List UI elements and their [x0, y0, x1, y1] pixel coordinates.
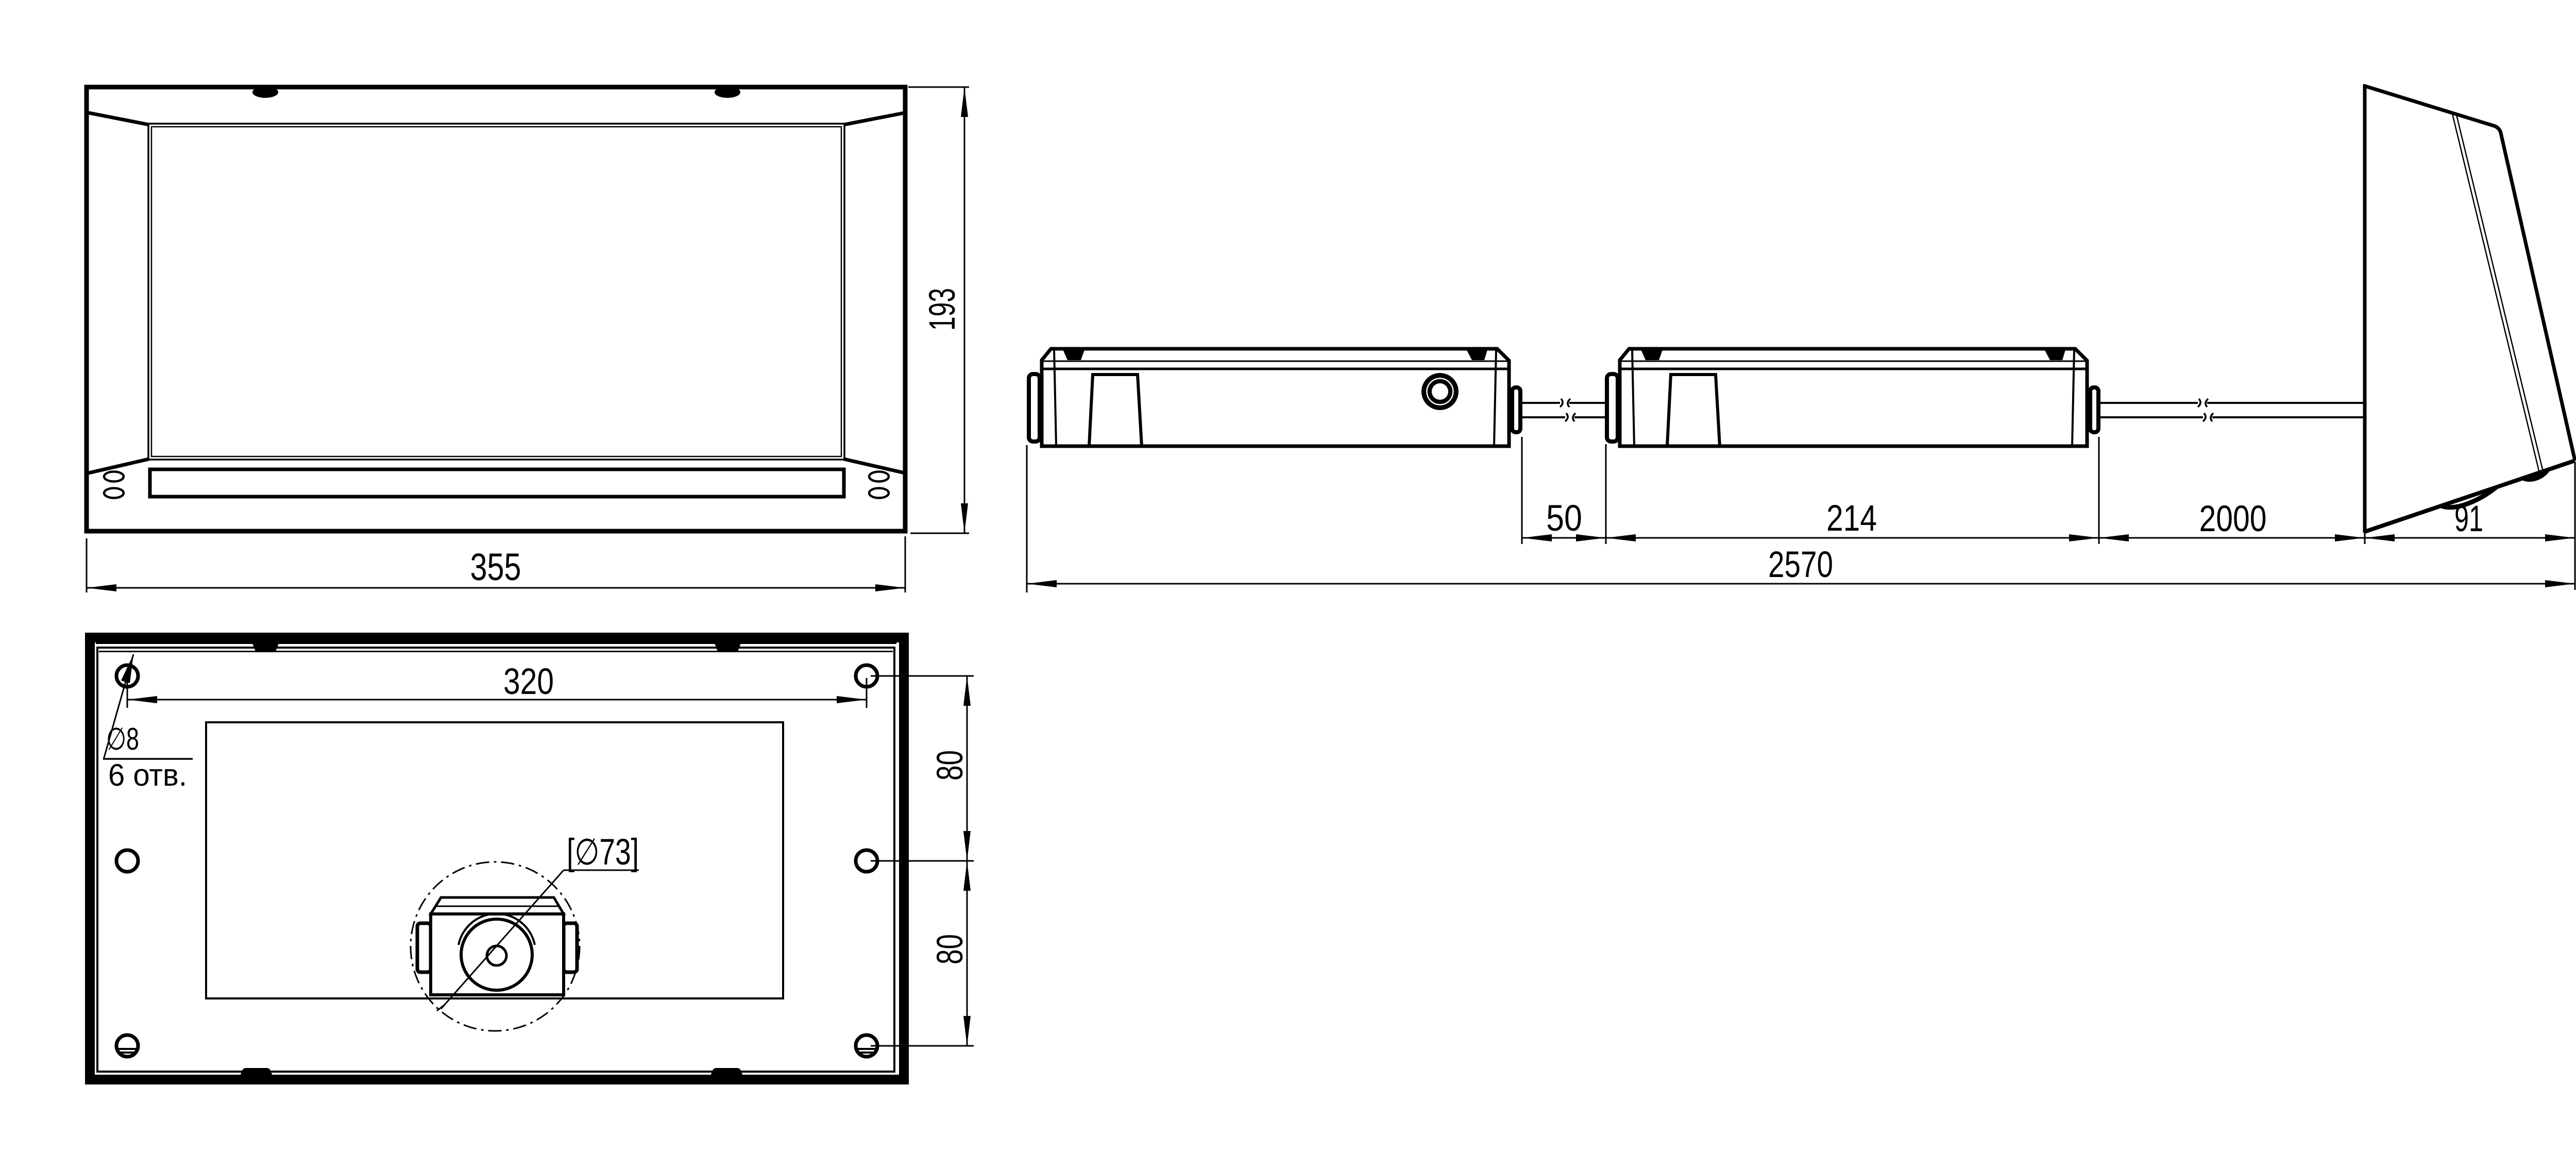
svg-text:214: 214	[1826, 498, 1877, 539]
svg-text:355: 355	[470, 546, 521, 588]
svg-text:2570: 2570	[1768, 545, 1833, 585]
svg-text:[∅73]: [∅73]	[567, 832, 639, 873]
svg-text:91: 91	[2454, 499, 2483, 539]
svg-text:80: 80	[930, 934, 971, 964]
svg-text:6 отв.: 6 отв.	[108, 758, 187, 792]
svg-text:2000: 2000	[2199, 499, 2267, 539]
svg-text:50: 50	[1546, 498, 1582, 539]
svg-text:320: 320	[503, 662, 554, 702]
svg-text:80: 80	[930, 750, 971, 781]
svg-text:193: 193	[922, 288, 963, 331]
svg-text:∅8: ∅8	[106, 722, 139, 756]
